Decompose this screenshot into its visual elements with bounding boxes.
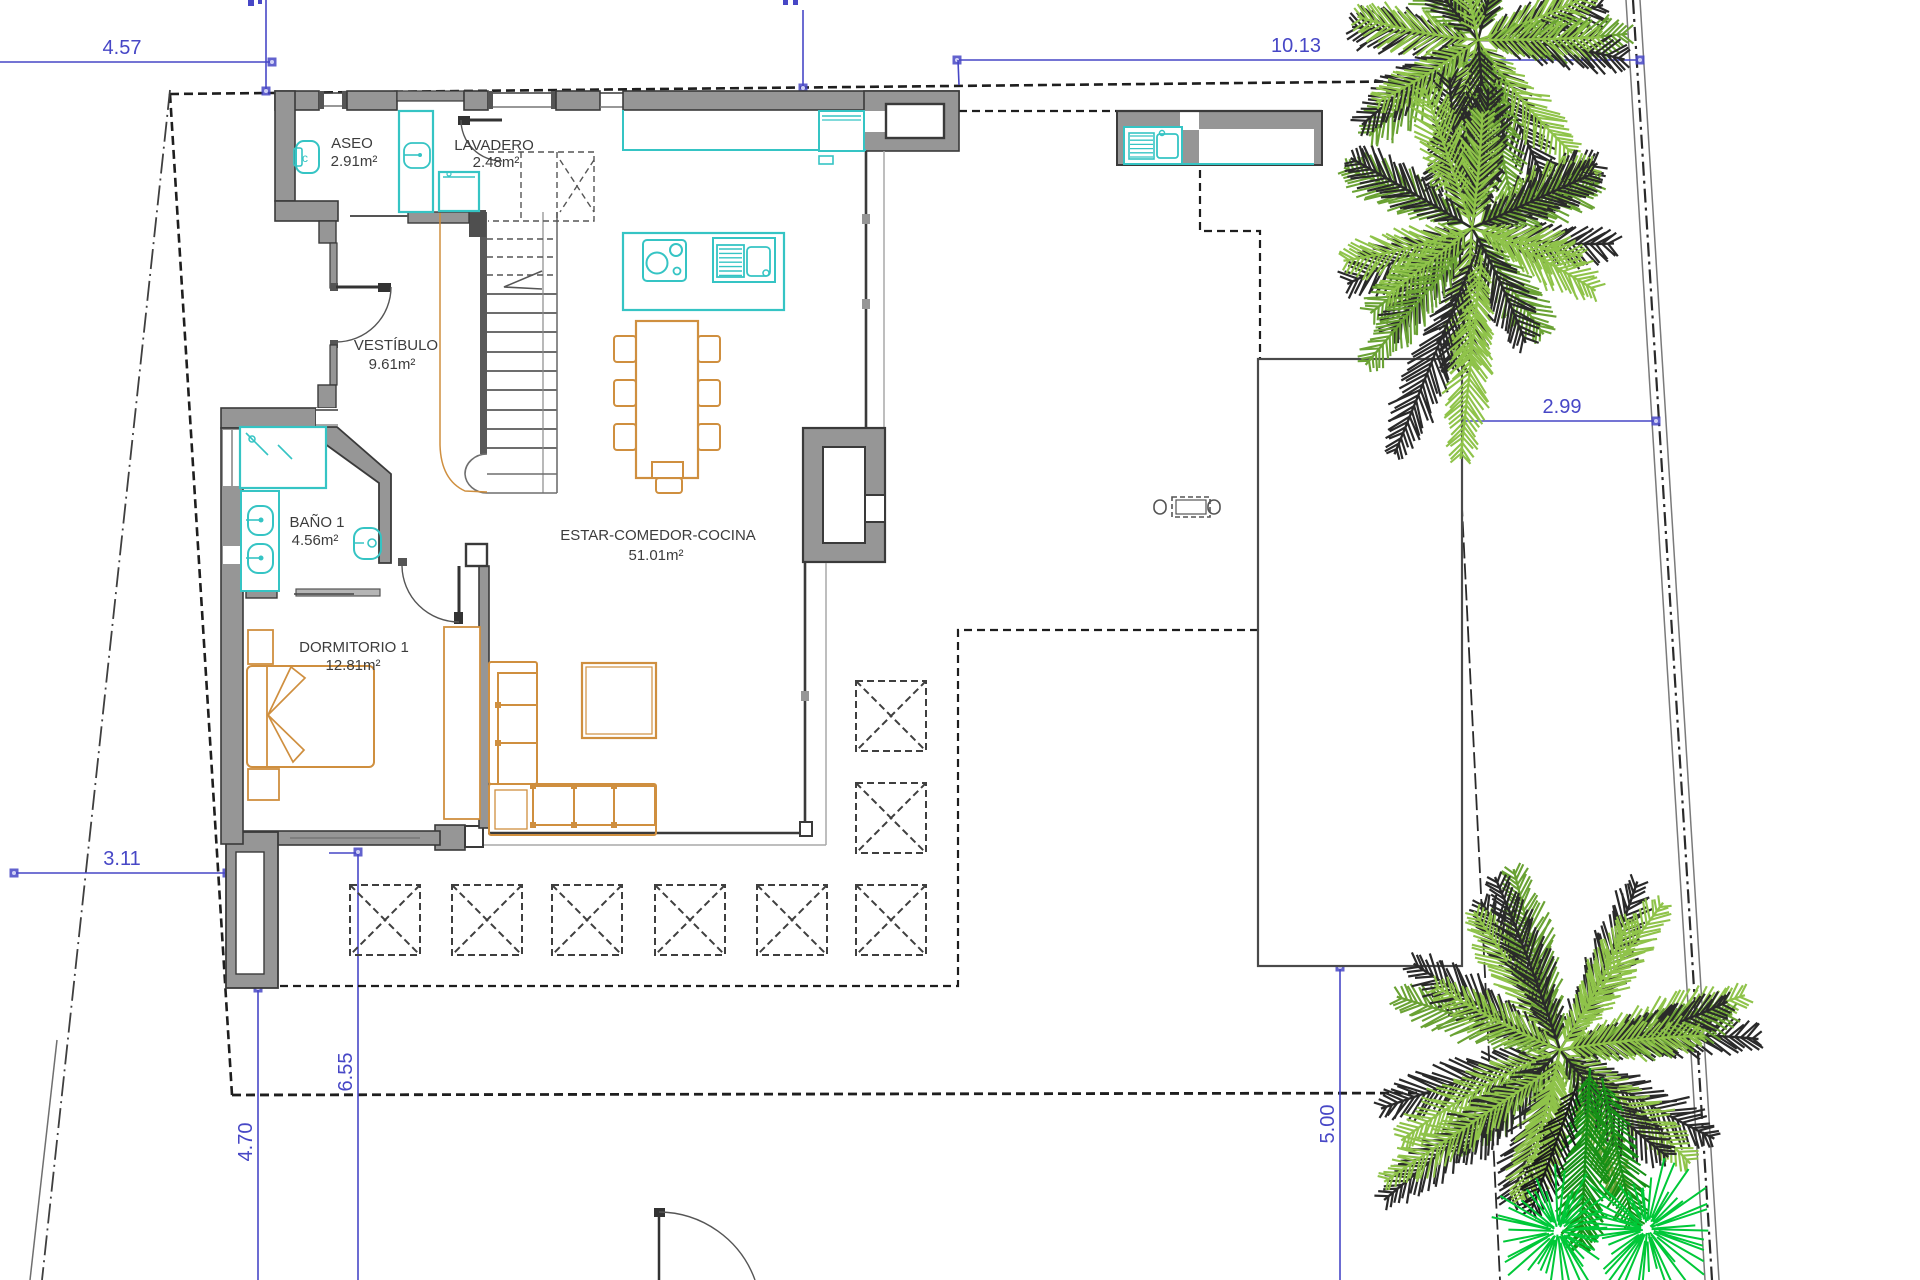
svg-text:10.13: 10.13 xyxy=(1271,35,1321,57)
svg-text:3.11: 3.11 xyxy=(103,848,140,870)
svg-text:5.00: 5.00 xyxy=(1317,1105,1339,1144)
svg-text:51.01m²: 51.01m² xyxy=(628,547,683,564)
svg-text:4.70: 4.70 xyxy=(235,1123,257,1162)
svg-text:2.48m²: 2.48m² xyxy=(473,154,520,171)
svg-text:4.57: 4.57 xyxy=(103,37,142,59)
svg-text:2.91m²: 2.91m² xyxy=(331,153,378,170)
svg-text:c: c xyxy=(302,151,308,165)
svg-text:6.55: 6.55 xyxy=(335,1053,357,1092)
svg-text:9.61m²: 9.61m² xyxy=(369,356,416,373)
svg-text:2.99: 2.99 xyxy=(1543,396,1582,418)
svg-text:12.81m²: 12.81m² xyxy=(325,657,380,674)
svg-text:DORMITORIO 1: DORMITORIO 1 xyxy=(299,639,409,656)
svg-text:ESTAR-COMEDOR-COCINA: ESTAR-COMEDOR-COCINA xyxy=(560,527,756,544)
svg-text:4.56m²: 4.56m² xyxy=(292,532,339,549)
svg-text:BAÑO 1: BAÑO 1 xyxy=(289,514,344,531)
svg-text:VESTÍBULO: VESTÍBULO xyxy=(354,337,438,354)
svg-text:LAVADERO: LAVADERO xyxy=(454,137,533,154)
svg-text:ASEO: ASEO xyxy=(331,135,373,152)
